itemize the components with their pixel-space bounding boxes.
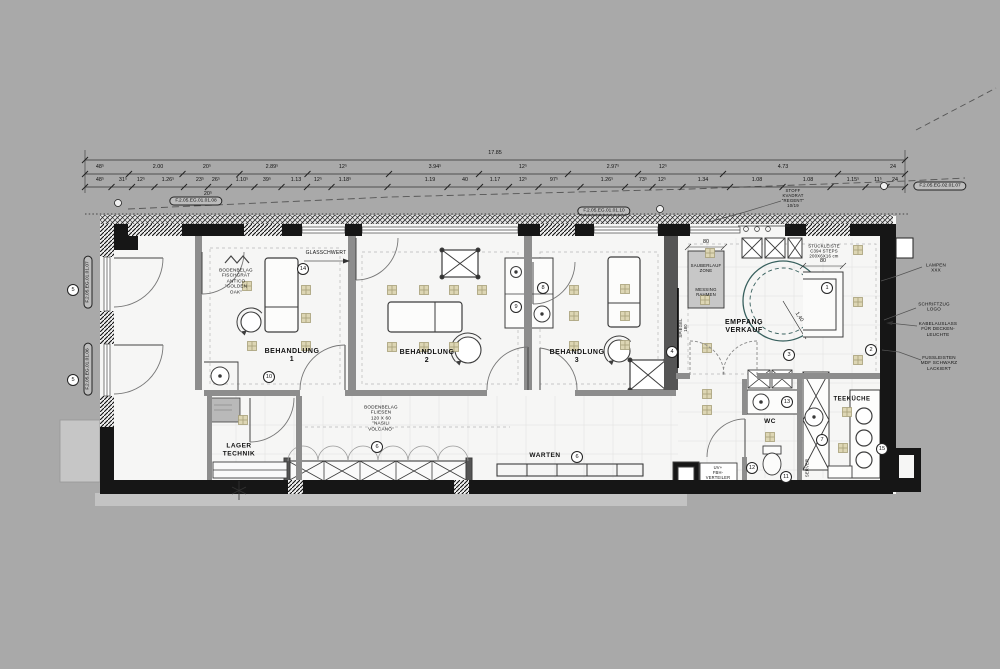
item-marker-3: 3 <box>783 349 795 361</box>
item-marker-14: 14 <box>297 263 309 275</box>
ceiling-light-icon <box>703 390 712 399</box>
spiegel-label: SPIEGEL 180 <box>679 318 689 337</box>
dimension-label: 23⁵ <box>196 177 204 183</box>
bottom-column-left <box>288 480 303 494</box>
ceiling-light-icon <box>854 298 863 307</box>
ceiling-light-icon <box>766 433 775 442</box>
wc-toilet <box>763 446 781 475</box>
room-label-behandlung1: BEHANDLUNG 1 <box>265 348 320 365</box>
bottom-wall <box>100 480 893 494</box>
item-marker-6b: 6 <box>571 451 583 463</box>
item-marker-2: 2 <box>865 344 877 356</box>
ceiling-light-icon <box>854 246 863 255</box>
dimension-label: 1.10⁵ <box>236 177 249 183</box>
wash-unit-room2 <box>505 258 527 328</box>
floorplan-drawing <box>0 0 1000 669</box>
ceiling-light-icon <box>854 356 863 365</box>
treatment-table-1 <box>265 258 298 332</box>
dimension-label: 1.19 <box>425 177 436 183</box>
dimension-label: 1.08 <box>803 177 814 183</box>
ceiling-light-icon <box>621 341 630 350</box>
dimension-label: 39⁵ <box>263 177 271 183</box>
item-marker-6a: 6 <box>371 441 383 453</box>
lampen-label: LAMPEN XXX <box>926 263 946 274</box>
dimension-label: 4.73 <box>778 164 789 170</box>
ref-tag-left-lower: F.2.05.EG.01.01.06 <box>84 342 93 395</box>
ceiling-light-icon <box>239 416 248 425</box>
dimension-label: 12⁵ <box>659 164 667 170</box>
dimension-label: 1.34 <box>698 177 709 183</box>
item-marker-9: 9 <box>510 301 522 313</box>
dimension-label: 12⁵ <box>314 177 322 183</box>
ceiling-box-room3 <box>628 358 668 392</box>
reception-ceiling-boxes <box>742 238 802 258</box>
dimension-label: 12⁵ <box>519 177 527 183</box>
dimension-label: 1.17 <box>490 177 501 183</box>
item-marker-4: 4 <box>666 346 678 358</box>
item-marker-5b: 5 <box>67 374 79 386</box>
sauberlauf-label: SAUBERLAUF ZONE <box>691 263 722 273</box>
dimension-label: 2.97⁵ <box>607 164 620 170</box>
ceiling-light-icon <box>248 342 257 351</box>
schriftzug-label: SCHRIFTZUG LOGO <box>918 302 950 313</box>
dimension-label: 1.26⁵ <box>162 177 175 183</box>
ceiling-light-icon <box>302 286 311 295</box>
total-dimension: 17.85 <box>488 150 502 156</box>
dimension-label: 1.15⁵ <box>847 177 860 183</box>
dimension-label: 2.89⁵ <box>266 164 279 170</box>
dimension-label: 3.94⁵ <box>429 164 442 170</box>
ceiling-light-icon <box>706 249 715 258</box>
dimension-label: 31⁵ <box>119 177 127 183</box>
dim-80-sauberlauf: 80 <box>703 239 709 245</box>
uv-verteiler-label: UV+ FBH- VERTEILER <box>706 466 730 480</box>
mirror-wall <box>664 236 678 390</box>
ceiling-light-icon <box>839 444 848 453</box>
stoff-label: STOFF KVADRAT "REGENT" 10/19 <box>782 188 805 208</box>
ceiling-light-icon <box>621 285 630 294</box>
dimension-label: 1.18⁵ <box>339 177 352 183</box>
item-marker-12: 12 <box>746 462 758 474</box>
item-marker-8: 8 <box>537 282 549 294</box>
dim-80-counter: 80 <box>820 258 826 264</box>
dimension-label: 24 <box>890 164 896 170</box>
item-marker-10: 10 <box>263 371 275 383</box>
room-label-behandlung3: BEHANDLUNG 3 <box>550 349 605 366</box>
right-niche-bottom <box>893 448 921 492</box>
dimension-label: 48⁵ <box>96 177 104 183</box>
dimension-label: 11⁵ <box>874 177 882 183</box>
ceiling-light-icon <box>388 286 397 295</box>
item-marker-7: 7 <box>816 434 828 446</box>
fussleisten-label: FUSSLEISTEN MDF SCHWARZ LACKIERT <box>921 355 957 371</box>
treatment-table-2 <box>388 302 462 332</box>
room-label-teekueche: TEEKÜCHE <box>833 396 870 403</box>
dimension-label: 1.08 <box>752 177 763 183</box>
ceiling-light-icon <box>570 312 579 321</box>
ceiling-light-icon <box>478 286 487 295</box>
sidewalk <box>95 493 687 506</box>
room-label-empfang: EMPFANG VERKAUF <box>725 319 763 336</box>
ceiling-light-icon <box>450 286 459 295</box>
dimension-label: 73⁵ <box>639 177 647 183</box>
item-marker-11: 11 <box>780 471 792 483</box>
stool <box>241 312 261 332</box>
ref-tag-top-right: F.2.05.EG.02.01.07 <box>913 182 966 191</box>
stuckleiste-label: STUCKLEISTE C394 STEPS 200X6X16 cm <box>808 243 840 258</box>
ceiling-light-icon <box>703 406 712 415</box>
dimension-label: 1.13 <box>291 177 302 183</box>
dimension-label: 12⁵ <box>137 177 145 183</box>
dimension-label: 40 <box>462 177 468 183</box>
dimension-label: 2.00 <box>153 164 164 170</box>
dimension-label: 24 <box>892 177 898 183</box>
ceiling-light-icon <box>843 408 852 417</box>
ceiling-light-icon <box>420 286 429 295</box>
ref-tag-top-left: F.2.05.EG.01.01.08 <box>169 197 222 206</box>
ceiling-light-icon <box>621 312 630 321</box>
bottom-column-right <box>454 480 469 494</box>
floorplan-canvas: 17.85 20⁵ 80 80 1,40 F.2.05.EG.01.01.08 … <box>0 0 1000 669</box>
item-marker-15: 15 <box>876 443 888 455</box>
wall-insulation-hatch <box>100 215 893 224</box>
item-marker-1: 1 <box>821 282 833 294</box>
ceiling-box-room2 <box>440 248 480 279</box>
server-label: SERVER <box>806 459 811 477</box>
ceiling-light-icon <box>570 286 579 295</box>
item-marker-5a: 5 <box>67 284 79 296</box>
dimension-label: 20⁵ <box>203 164 211 170</box>
ref-tag-left-upper: F.2.05.EG.01.01.07 <box>84 255 93 308</box>
dimension-label: 12⁵ <box>658 177 666 183</box>
ceiling-light-icon <box>302 314 311 323</box>
dimension-label: 12⁵ <box>519 164 527 170</box>
teekueche-cabinet-column <box>803 372 829 470</box>
room-label-lager: LAGER TECHNIK <box>223 442 255 457</box>
dimension-label: 48⁵ <box>96 164 104 170</box>
dimension-label: 26⁵ <box>212 177 220 183</box>
glasschwert-label: GLASSCHWERT <box>306 251 347 257</box>
messing-rahmen-label: MESSING RAHMEN <box>695 287 716 297</box>
room-label-wc: WC <box>764 418 776 426</box>
bodenbelag-behandlung-label: BODENBELAG FISCHGRÄT ANTICO "GOLDEN OAK" <box>219 267 253 294</box>
right-niche-top <box>896 238 913 258</box>
kabelauslass-label: KABELAUSLASS FÜR DECKEN- LEUCHTE <box>919 321 957 337</box>
room-label-warten: WARTEN <box>529 452 560 460</box>
ref-tag-top-center: F.2.05.EG.01.01.10 <box>577 207 630 216</box>
room-label-behandlung2: BEHANDLUNG 2 <box>400 349 455 366</box>
bodenbelag-flur-label: BODENBELAG FLIESEN 120 X 60 "NASILI VOLC… <box>364 404 398 431</box>
dimension-label: 12⁵ <box>339 164 347 170</box>
ceiling-light-icon <box>388 343 397 352</box>
exterior-ramp <box>60 420 100 482</box>
dimension-label: 1.26⁵ <box>601 177 614 183</box>
item-marker-13: 13 <box>781 396 793 408</box>
dimension-label: 97⁵ <box>550 177 558 183</box>
